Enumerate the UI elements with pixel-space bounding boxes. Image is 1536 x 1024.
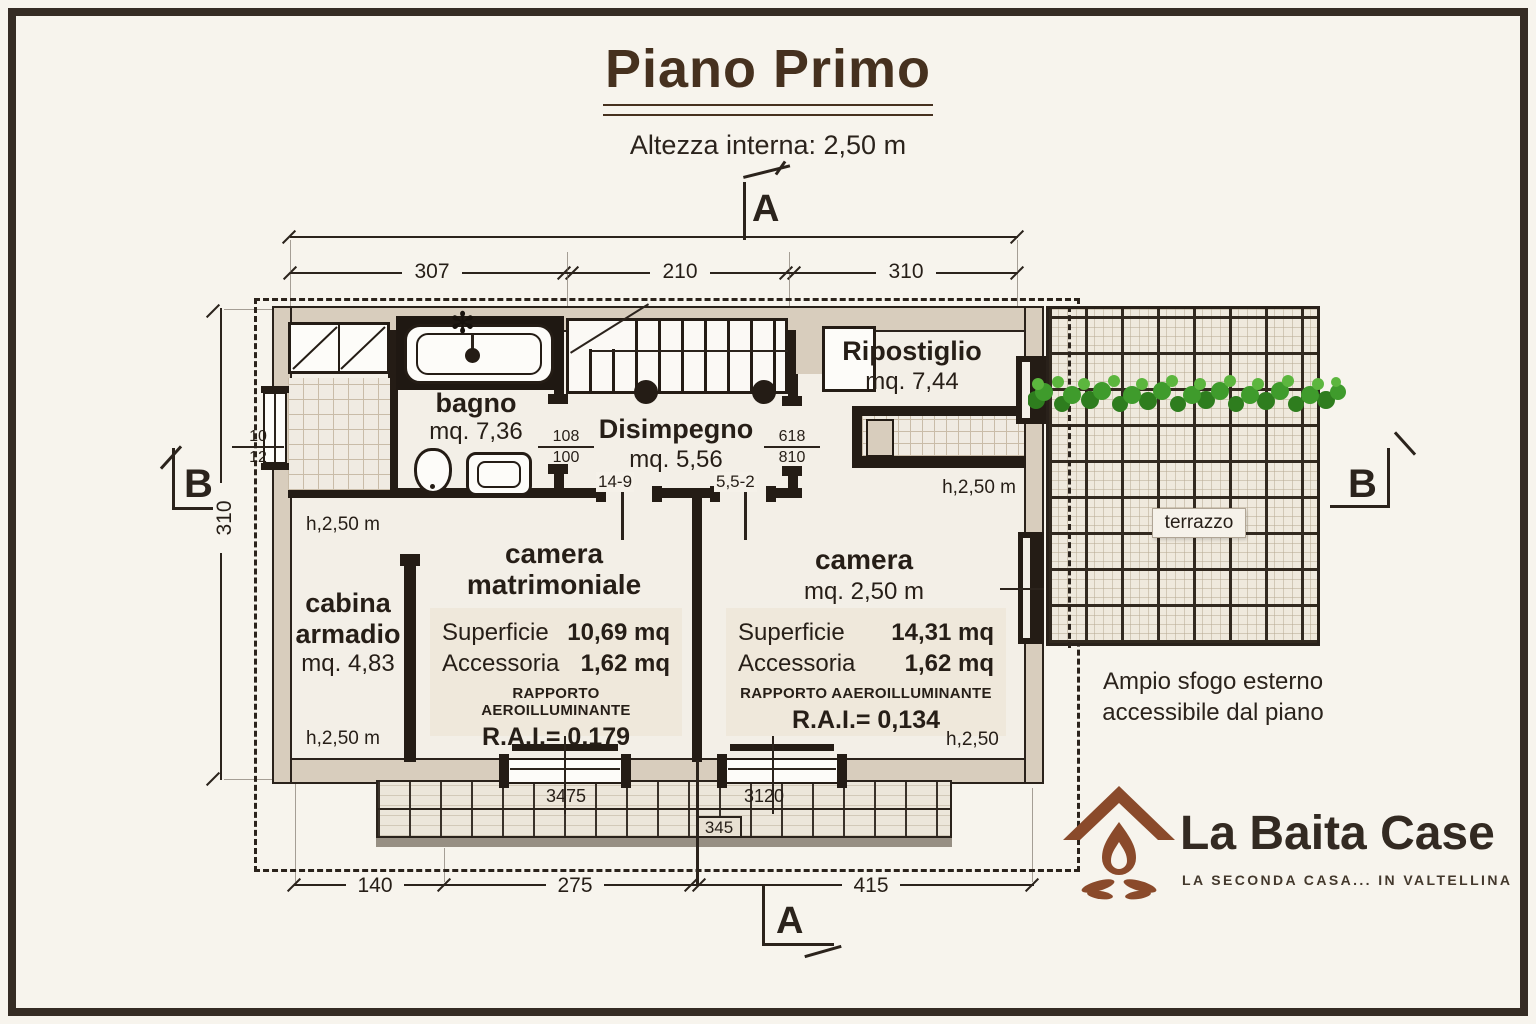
door-mark-line bbox=[744, 492, 747, 540]
wall-ripostiglio-bottom bbox=[852, 406, 1026, 416]
dim-line-bottom bbox=[294, 884, 1034, 886]
room-ripostiglio-name: Ripostiglio bbox=[832, 336, 992, 367]
wall-camera-divider bbox=[692, 488, 702, 762]
bagno-door-size: 108 100 bbox=[538, 428, 594, 466]
plants-icon bbox=[1028, 370, 1346, 420]
title-block: Piano Primo Altezza interna: 2,50 m bbox=[468, 38, 1068, 161]
room-camera-name: camera bbox=[804, 544, 924, 575]
dim-top-307: 307 bbox=[402, 260, 462, 284]
page-subtitle: Altezza interna: 2,50 m bbox=[468, 130, 1068, 161]
dim-left-310: 310 bbox=[213, 483, 237, 553]
window-cap bbox=[837, 754, 847, 788]
section-a-top-line bbox=[743, 182, 746, 240]
room-cameramatr-name-l1: camera bbox=[434, 538, 674, 569]
superficie-value: 10,69 mq bbox=[567, 619, 670, 647]
stat-row: Superficie 10,69 mq bbox=[442, 619, 670, 647]
accessoria-label: Accessoria bbox=[738, 650, 855, 678]
cabina-height-bottom: h,2,50 m bbox=[306, 728, 380, 750]
camera-door-size: 618 810 bbox=[764, 428, 820, 466]
door-center-mark bbox=[1000, 588, 1044, 590]
superficie-value: 14,31 mq bbox=[891, 619, 994, 647]
center-witness-line bbox=[696, 760, 699, 886]
wall-cabina bbox=[404, 558, 416, 762]
door-jamb bbox=[400, 554, 420, 566]
toilet-dot bbox=[430, 484, 435, 489]
ripostiglio-niche bbox=[796, 328, 822, 374]
accessoria-value: 1,62 mq bbox=[905, 650, 994, 678]
balcony-edge bbox=[376, 836, 952, 847]
dim-bottom-275: 275 bbox=[546, 874, 604, 898]
door-jamb bbox=[548, 394, 568, 404]
section-marker-a-bottom: A bbox=[776, 900, 803, 943]
rapporto-label: RAPPORTO AAEROILLUMINANTE bbox=[738, 685, 994, 702]
shower-floor bbox=[288, 378, 390, 490]
door-mark-14-9: 14-9 bbox=[596, 472, 634, 492]
window-cap bbox=[717, 754, 727, 788]
cameramatr-stats: Superficie 10,69 mq Accessoria 1,62 mq R… bbox=[430, 608, 682, 736]
room-disimpegno-area: mq. 5,56 bbox=[611, 446, 741, 474]
window-label-345-box: 345 bbox=[696, 816, 742, 838]
camera-height-top: h,2,50 m bbox=[930, 477, 1016, 499]
window-line bbox=[728, 768, 836, 770]
window-bottom-2 bbox=[724, 758, 840, 784]
frac-bottom: 100 bbox=[553, 449, 580, 466]
room-cabina-name-l1: cabina bbox=[292, 588, 404, 619]
door-jamb bbox=[782, 396, 802, 406]
frac-bottom: 810 bbox=[779, 449, 806, 466]
section-b-left-base bbox=[172, 507, 216, 510]
window-cap bbox=[621, 754, 631, 788]
window-line bbox=[510, 768, 620, 770]
wardrobe-x-icon bbox=[291, 325, 387, 371]
accessoria-value: 1,62 mq bbox=[581, 650, 670, 678]
dim-top-310: 310 bbox=[876, 260, 936, 284]
dim-bottom-415: 415 bbox=[842, 874, 900, 898]
room-ripostiglio-area: mq. 7,44 bbox=[852, 368, 972, 396]
section-a-bottom-line bbox=[762, 884, 765, 946]
dim-line-top-overall bbox=[290, 236, 1018, 238]
room-cabina-name-l2: armadio bbox=[292, 619, 404, 650]
door-jamb bbox=[782, 466, 802, 476]
frac-line bbox=[764, 446, 820, 448]
terrace-note-l2: accessibile dal piano bbox=[1090, 697, 1336, 728]
door-jamb bbox=[766, 486, 776, 502]
window-label-3120: 3120 bbox=[744, 786, 784, 807]
wall-row-divide-b bbox=[656, 488, 718, 498]
section-a-bottom-base bbox=[762, 943, 834, 946]
section-marker-b-left: B bbox=[184, 462, 213, 507]
frac-line bbox=[232, 446, 284, 448]
section-marker-a-top: A bbox=[752, 188, 779, 231]
washbasin-bowl bbox=[477, 461, 521, 488]
section-b-right-arrow bbox=[1394, 431, 1416, 455]
room-bagno-name: bagno bbox=[420, 388, 532, 419]
brand-name: La Baita Case bbox=[1180, 806, 1495, 861]
stair-landing-line bbox=[592, 350, 788, 352]
ripostiglio-shelf bbox=[866, 419, 894, 457]
stat-row: Accessoria 1,62 mq bbox=[442, 650, 670, 678]
room-cabina-area: mq. 4,83 bbox=[292, 650, 404, 678]
dim-tick bbox=[206, 772, 220, 786]
frac-bottom: 12 bbox=[249, 449, 267, 466]
camera-stats: Superficie 14,31 mq Accessoria 1,62 mq R… bbox=[726, 608, 1006, 736]
superficie-label: Superficie bbox=[442, 619, 549, 647]
camera-height-bottom: h,2,50 bbox=[946, 729, 999, 751]
window-cap bbox=[499, 754, 509, 788]
superficie-label: Superficie bbox=[738, 619, 845, 647]
window-label-3475: 3475 bbox=[546, 786, 586, 807]
window-cap bbox=[261, 386, 289, 393]
frac-top: 10 bbox=[249, 428, 267, 445]
title-underline bbox=[603, 104, 933, 116]
room-cameramatr-name: camera matrimoniale bbox=[434, 538, 674, 600]
column bbox=[634, 380, 658, 404]
section-b-left-arrow bbox=[160, 445, 182, 469]
terrace-note: Ampio sfogo esterno accessibile dal pian… bbox=[1090, 666, 1336, 728]
wardrobe-closet bbox=[288, 322, 390, 374]
window-sill bbox=[730, 744, 834, 751]
stat-row: Superficie 14,31 mq bbox=[738, 619, 994, 647]
frac-line bbox=[538, 446, 594, 448]
left-window-size: 10 12 bbox=[232, 428, 284, 466]
floor-plan-sheet: Piano Primo Altezza interna: 2,50 m 307 … bbox=[0, 0, 1536, 1024]
section-marker-b-right: B bbox=[1348, 462, 1377, 507]
door-jamb bbox=[652, 486, 662, 502]
brand-tagline: LA SECONDA CASA... IN VALTELLINA bbox=[1182, 872, 1512, 888]
window-left-mullion bbox=[274, 394, 276, 462]
rapporto-label: RAPPORTO AEROILLUMINANTE bbox=[442, 685, 670, 719]
wall-camera-top bbox=[852, 456, 1026, 468]
room-camera-area: mq. 2,50 m bbox=[799, 578, 929, 606]
room-bagno-area: mq. 7,36 bbox=[421, 418, 531, 446]
dim-bottom-140: 140 bbox=[346, 874, 404, 898]
faucet-drain bbox=[465, 348, 480, 363]
door-mark-line bbox=[621, 492, 624, 540]
room-cabina-name: cabina armadio bbox=[292, 588, 404, 650]
door-mark-55-2: 5,5-2 bbox=[714, 472, 757, 492]
window-label-345: 345 bbox=[705, 818, 733, 837]
page-title: Piano Primo bbox=[468, 38, 1068, 100]
brand-logo-icon bbox=[1060, 778, 1178, 904]
terrace-label: terrazzo bbox=[1165, 512, 1234, 533]
frac-top: 108 bbox=[553, 428, 580, 445]
stat-row: Accessoria 1,62 mq bbox=[738, 650, 994, 678]
column bbox=[752, 380, 776, 404]
balcony-tile-line bbox=[378, 808, 950, 810]
property-dashed-over-terrace bbox=[1068, 306, 1071, 648]
room-cameramatr-name-l2: matrimoniale bbox=[434, 569, 674, 600]
accessoria-label: Accessoria bbox=[442, 650, 559, 678]
rai-value: R.A.I.= 0,179 bbox=[442, 723, 670, 752]
terrace-note-l1: Ampio sfogo esterno bbox=[1090, 666, 1336, 697]
terrace-label-box: terrazzo bbox=[1152, 508, 1246, 538]
section-b-right-line bbox=[1387, 448, 1390, 508]
frac-top: 618 bbox=[779, 428, 806, 445]
dim-tick bbox=[206, 304, 220, 318]
section-a-bottom-arrow bbox=[804, 945, 841, 958]
room-disimpegno-name: Disimpegno bbox=[596, 414, 756, 445]
cabina-height-top: h,2,50 m bbox=[306, 514, 380, 536]
dim-top-210: 210 bbox=[650, 260, 710, 284]
terrace-floor bbox=[1046, 306, 1320, 646]
